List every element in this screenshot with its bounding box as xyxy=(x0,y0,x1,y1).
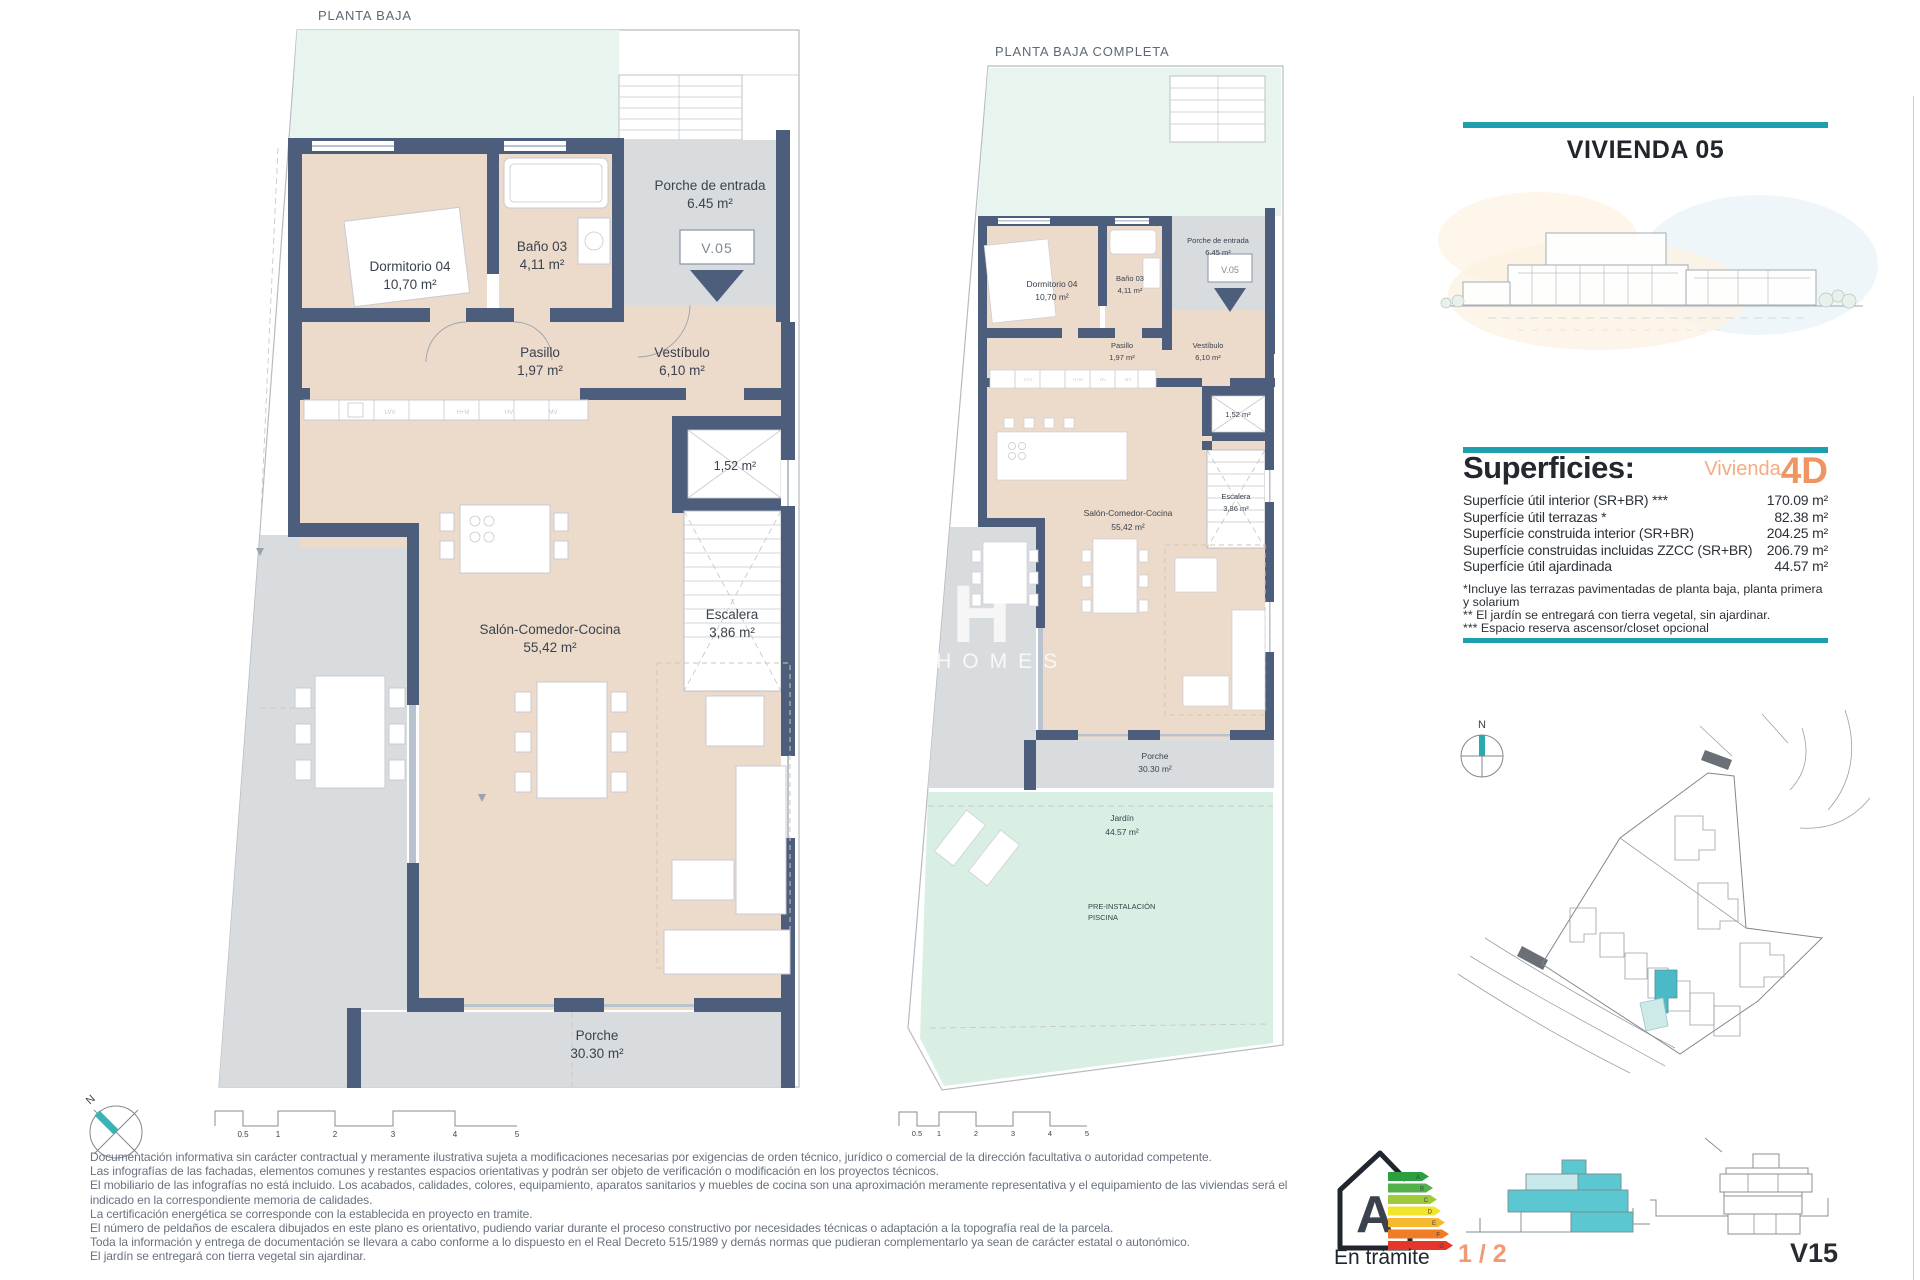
svg-text:1,97 m²: 1,97 m² xyxy=(517,363,563,378)
room-label-vestibulo: Vestíbulo xyxy=(1193,341,1224,350)
scale-bar: 0.5 1 2 3 4 5 xyxy=(893,1102,1103,1144)
floor-plan-planta-baja: V.05 LVV H+M HV MV Dormitorio 04 10,70 m… xyxy=(212,8,812,1093)
north-compass-icon: N xyxy=(1461,719,1503,777)
svg-text:2: 2 xyxy=(974,1129,978,1138)
panel-bottom-rule xyxy=(1463,638,1828,643)
site-plan: N xyxy=(1450,698,1920,1090)
room-label-bano: Baño 03 xyxy=(1116,274,1144,283)
kitchen-unit-label: H+M xyxy=(457,410,470,416)
svg-text:3: 3 xyxy=(1011,1129,1015,1138)
building-render xyxy=(1428,170,1880,420)
svg-text:1: 1 xyxy=(937,1129,941,1138)
svg-text:B: B xyxy=(1420,1187,1424,1193)
side-terrace xyxy=(219,535,407,1087)
superficies-footnotes: *Incluye las terrazas pavimentadas de pl… xyxy=(1463,583,1828,635)
staircase xyxy=(684,511,781,691)
svg-text:44.57 m²: 44.57 m² xyxy=(1105,827,1139,837)
vivienda-type: 4D xyxy=(1781,455,1828,486)
table-row: Superfície útil ajardinada44.57 m² xyxy=(1463,558,1828,575)
svg-text:5: 5 xyxy=(1085,1129,1089,1138)
svg-text:D: D xyxy=(1428,1210,1433,1216)
superficies-heading: Superficies: xyxy=(1463,450,1634,486)
room-label-bano: Baño 03 xyxy=(517,239,567,254)
svg-text:6.45 m²: 6.45 m² xyxy=(687,196,733,211)
superficies-header: Superficies: Vivienda 4D xyxy=(1463,450,1828,486)
svg-text:2: 2 xyxy=(333,1130,338,1139)
kitchen-unit-label: MV xyxy=(549,410,558,416)
unit-tag-label: V.05 xyxy=(701,240,733,256)
room-label-pasillo: Pasillo xyxy=(520,345,560,360)
table-row: Superfície construida interior (SR+BR)20… xyxy=(1463,525,1828,542)
svg-text:3: 3 xyxy=(391,1130,396,1139)
label-pre-instalacion: PRE-INSTALACIÓN xyxy=(1088,902,1155,911)
plan-sheet: PLANTA BAJA PLANTA BAJA COMPLETA xyxy=(0,0,1920,1280)
svg-text:5: 5 xyxy=(515,1130,520,1139)
svg-text:1,97 m²: 1,97 m² xyxy=(1109,353,1135,362)
svg-text:10,70 m²: 10,70 m² xyxy=(383,277,437,292)
svg-text:C: C xyxy=(1424,1198,1429,1204)
svg-text:6,10 m²: 6,10 m² xyxy=(659,363,705,378)
panel-top-rule xyxy=(1463,122,1828,128)
svg-text:N: N xyxy=(84,1093,98,1107)
energy-status: En trámite xyxy=(1334,1246,1430,1270)
svg-text:55,42 m²: 55,42 m² xyxy=(1111,522,1145,532)
svg-text:4: 4 xyxy=(1048,1129,1052,1138)
entry-steps xyxy=(1170,76,1265,142)
entry-steps xyxy=(619,75,799,140)
scale-bar: 0.5 1 2 3 4 5 xyxy=(208,1102,538,1144)
svg-text:F: F xyxy=(1436,1233,1440,1239)
page-title: VIVIENDA 05 xyxy=(1463,136,1828,165)
room-label-trastero: 1,52 m² xyxy=(1225,410,1251,419)
svg-text:55,42 m²: 55,42 m² xyxy=(523,640,577,655)
room-label-porche: Porche xyxy=(576,1028,619,1043)
room-label-vestibulo: Vestíbulo xyxy=(654,345,710,360)
room-label-trastero: 1,52 m² xyxy=(714,459,756,473)
building-section-outline xyxy=(1650,1136,1850,1246)
energy-scale-bars: A B C D E F G xyxy=(1388,1172,1453,1250)
superficies-table: Superfície útil interior (SR+BR) ***170.… xyxy=(1463,492,1828,575)
building-section-color xyxy=(1466,1158,1651,1250)
svg-text:4: 4 xyxy=(453,1130,458,1139)
svg-text:0.5: 0.5 xyxy=(912,1129,922,1138)
table-row: Superfície útil terrazas *82.38 m² xyxy=(1463,509,1828,526)
watermark-letter: H xyxy=(952,568,1011,662)
svg-text:30.30 m²: 30.30 m² xyxy=(1138,764,1172,774)
room-label-porche-entrada: Porche de entrada xyxy=(1187,236,1250,245)
vivienda-word: Vivienda xyxy=(1704,458,1780,486)
table-row: Superfície útil interior (SR+BR) ***170.… xyxy=(1463,492,1828,509)
svg-text:E: E xyxy=(1432,1221,1436,1227)
room-label-salon: Salón-Comedor-Cocina xyxy=(479,622,621,637)
svg-text:H+M: H+M xyxy=(1073,377,1083,382)
svg-text:4,11 m²: 4,11 m² xyxy=(520,257,565,272)
svg-text:MV: MV xyxy=(1125,377,1132,382)
unit-tag-label: V.05 xyxy=(1221,265,1239,275)
page-edge-rule xyxy=(1913,96,1914,1280)
watermark-text: ITY HOMES xyxy=(854,650,1068,674)
svg-text:N: N xyxy=(1478,719,1486,731)
svg-text:3,86 m²: 3,86 m² xyxy=(709,625,755,640)
room-label-porche-entrada: Porche de entrada xyxy=(654,178,766,193)
room-label-jardin: Jardín xyxy=(1110,813,1134,823)
svg-text:HV: HV xyxy=(1100,377,1106,382)
svg-text:6.45 m²: 6.45 m² xyxy=(1205,248,1231,257)
svg-text:1: 1 xyxy=(276,1130,281,1139)
room-label-escalera: Escalera xyxy=(706,607,759,622)
kitchen-unit-label: LVV xyxy=(385,410,396,416)
svg-text:30.30 m²: 30.30 m² xyxy=(570,1046,624,1061)
page-number: 1 / 2 xyxy=(1458,1240,1507,1269)
disclaimer-text: Documentación informativa sin carácter c… xyxy=(90,1150,1287,1264)
svg-text:10,70 m²: 10,70 m² xyxy=(1035,292,1069,302)
svg-text:0.5: 0.5 xyxy=(237,1130,249,1139)
entrance-porch xyxy=(619,140,776,305)
svg-text:PISCINA: PISCINA xyxy=(1088,913,1118,922)
table-row: Superfície construidas incluidas ZZCC (S… xyxy=(1463,542,1828,559)
room-label-escalera: Escalera xyxy=(1221,492,1251,501)
svg-text:LVV: LVV xyxy=(1024,377,1032,382)
svg-text:6,10 m²: 6,10 m² xyxy=(1195,353,1221,362)
room-label-porche: Porche xyxy=(1142,751,1169,761)
room-label-dormitorio: Dormitorio 04 xyxy=(1026,279,1077,289)
room-label-pasillo: Pasillo xyxy=(1111,341,1133,350)
svg-text:3,86 m²: 3,86 m² xyxy=(1223,504,1249,513)
svg-text:A: A xyxy=(1416,1175,1420,1181)
svg-text:4,11 m²: 4,11 m² xyxy=(1118,286,1143,295)
svg-text:G: G xyxy=(1439,1244,1444,1250)
room-label-salon: Salón-Comedor-Cocina xyxy=(1084,508,1173,518)
room-label-dormitorio: Dormitorio 04 xyxy=(369,259,451,274)
kitchen-unit-label: HV xyxy=(505,410,513,416)
energy-rating-letter: A xyxy=(1356,1186,1394,1244)
sheet-code: V15 xyxy=(1790,1238,1838,1269)
